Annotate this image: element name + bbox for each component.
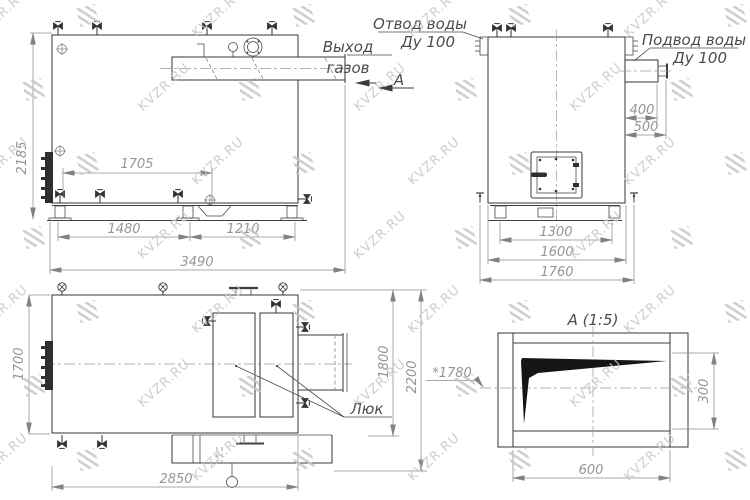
lifting-lug-mark — [56, 43, 68, 55]
handwheel-valve-icon — [58, 283, 66, 296]
water-supply-flange — [625, 37, 638, 55]
door-handle — [531, 173, 547, 178]
svg-text:Ду 100: Ду 100 — [672, 49, 727, 67]
dim-1480: 1480 — [107, 222, 140, 237]
dim-1705: 1705 — [120, 157, 153, 172]
plan-view — [41, 283, 352, 488]
valve-icon — [96, 190, 105, 203]
hatch-label: Люк — [236, 366, 392, 418]
valve-icon — [174, 190, 183, 203]
dim-300: 300 — [697, 379, 712, 404]
dim-1780: *1780 — [432, 366, 472, 381]
front-door-flange — [41, 152, 53, 203]
side-view — [41, 22, 352, 221]
valve-icon — [93, 22, 102, 35]
valve-icon — [298, 195, 311, 204]
svg-text:Ду 100: Ду 100 — [400, 33, 455, 51]
water-outlet-label: Отвод воды Ду 100 — [373, 15, 483, 51]
lifting-lug-mark — [204, 194, 216, 206]
lifting-lug-mark — [54, 145, 66, 157]
dim-1760: 1760 — [540, 265, 573, 280]
valve-icon — [54, 22, 63, 35]
chimney-stub — [229, 288, 258, 295]
support-frame-side — [47, 206, 307, 221]
dim-1700: 1700 — [12, 347, 27, 380]
burner-box-plan — [172, 435, 332, 488]
dim-400: 400 — [630, 103, 655, 118]
safety-valve-flange — [244, 38, 262, 56]
dim-1210: 1210 — [226, 222, 259, 237]
valve-icon — [203, 22, 212, 35]
back-view-dimensions: 400 500 1300 1600 1760 — [480, 80, 666, 284]
front-door-flange-plan — [41, 341, 53, 390]
svg-text:Выход: Выход — [323, 38, 374, 56]
sight-glass — [227, 477, 238, 488]
anchor-bolt-icon — [476, 193, 484, 203]
flue-duct-plan — [298, 333, 347, 392]
valve-icon — [58, 435, 67, 448]
dim-1600: 1600 — [540, 245, 573, 260]
dim-1300: 1300 — [539, 225, 572, 240]
valve-icon — [604, 24, 613, 37]
svg-text:Подвод воды: Подвод воды — [642, 31, 746, 49]
svg-text:газов: газов — [326, 59, 369, 77]
weld-seam — [521, 358, 667, 424]
valve-icon — [493, 24, 502, 37]
dim-1800: 1800 — [377, 345, 392, 378]
thermometer-well — [229, 43, 238, 58]
dim-500: 500 — [634, 120, 659, 135]
hatch-left — [213, 313, 255, 417]
valve-icon — [507, 24, 516, 37]
svg-text:Отвод воды: Отвод воды — [373, 15, 467, 33]
section-letter: А — [393, 71, 404, 89]
dim-600: 600 — [579, 463, 604, 478]
dim-2200: 2200 — [405, 360, 420, 393]
anchor-bolt-icon — [630, 193, 638, 203]
handwheel-valve-icon — [279, 283, 287, 296]
water-outlet-flange — [475, 37, 488, 55]
dim-2850: 2850 — [159, 472, 192, 487]
technical-drawing: 2185 1705 1480 1210 3490 Выход газов А О… — [0, 0, 750, 500]
drain-pipe — [197, 44, 204, 57]
water-supply-label: Подвод воды Ду 100 — [634, 31, 746, 67]
valve-icon — [98, 435, 107, 448]
dim-2185: 2185 — [15, 141, 30, 174]
plan-view-dimensions: 1700 1800 2200 2850 *1780 — [12, 290, 483, 491]
water-supply-box — [620, 60, 674, 82]
detail-view-a: А (1:5) 300 600 — [480, 311, 719, 482]
svg-text:Люк: Люк — [350, 400, 384, 418]
valve-icon — [272, 300, 281, 313]
support-frame-back — [488, 206, 622, 221]
valve-icon — [268, 22, 277, 35]
handwheel-valve-icon — [159, 283, 167, 296]
flue-duct-side — [172, 57, 345, 80]
dim-3490: 3490 — [180, 255, 213, 270]
detail-title: А (1:5) — [567, 311, 619, 329]
boiler-drawing-canvas: 2185 1705 1480 1210 3490 Выход газов А О… — [0, 0, 750, 500]
valve-icon — [203, 317, 216, 326]
